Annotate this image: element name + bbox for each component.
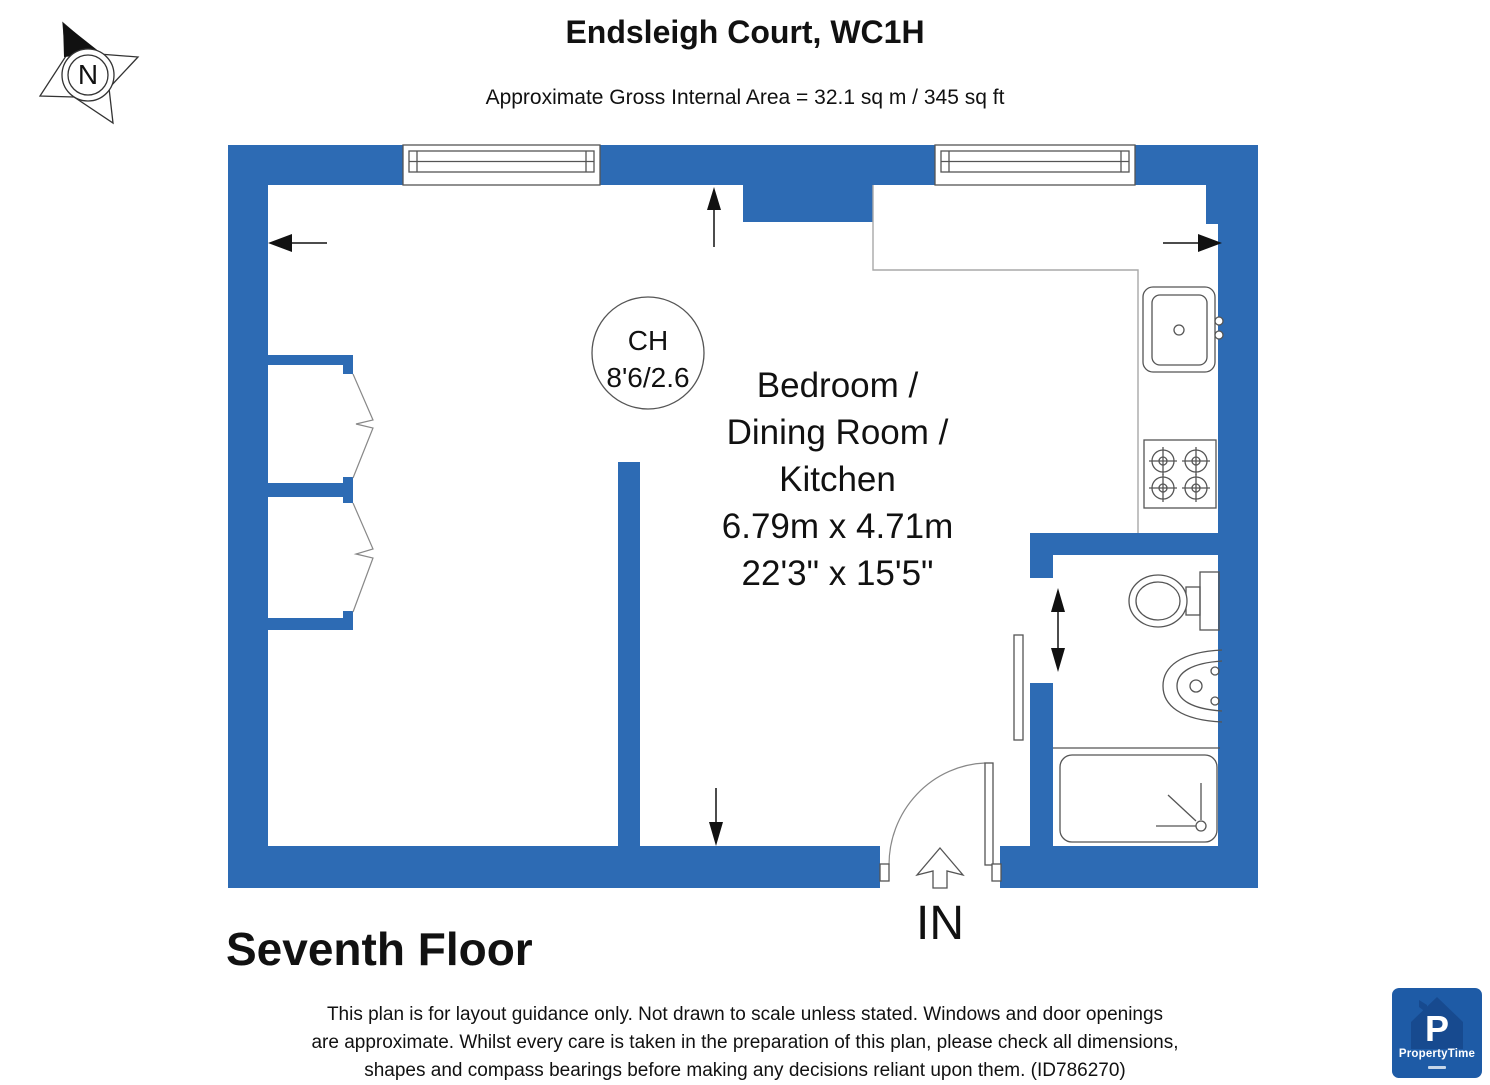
room-label: Bedroom / Dining Room / Kitchen 6.79m x … (600, 362, 1075, 597)
wardrobe-door-bottom (353, 503, 373, 612)
wardrobe-stub-mid (268, 483, 353, 497)
opening-arrow-down (709, 788, 723, 846)
toilet (1129, 572, 1219, 630)
bathroom-door-leaf (1014, 635, 1023, 740)
kitchen-hob (1144, 440, 1216, 508)
basin (1163, 650, 1222, 722)
entrance-in-label: IN (880, 896, 1000, 951)
floor-label: Seventh Floor (226, 922, 533, 976)
window-2 (935, 145, 1135, 185)
room-dimensions-imperial: 22'3" x 15'5" (600, 550, 1075, 597)
right-wall-step (1206, 185, 1218, 224)
disclaimer: This plan is for layout guidance only. N… (0, 1001, 1490, 1085)
bottom-wall-left (228, 846, 880, 888)
left-wall (228, 145, 268, 888)
page-subtitle: Approximate Gross Internal Area = 32.1 s… (0, 86, 1490, 110)
wardrobe-door-top (353, 374, 373, 478)
wardrobe-tab-mid (343, 477, 353, 503)
page-title: Endsleigh Court, WC1H (0, 14, 1490, 51)
room-name-line-3: Kitchen (600, 456, 1075, 503)
window-1 (403, 145, 600, 185)
wardrobe-stub-bottom (268, 618, 353, 630)
top-wall-mid (600, 145, 935, 185)
bathtub (1053, 748, 1220, 842)
logo-brand: PropertyTime (1392, 1048, 1482, 1060)
opening-arrow-right (1163, 234, 1222, 252)
opening-arrow-up (707, 187, 721, 247)
wardrobe-tab-bottom (343, 611, 353, 630)
disclaimer-line-1: This plan is for layout guidance only. N… (0, 1001, 1490, 1029)
right-wall (1218, 145, 1258, 888)
entrance-door (880, 763, 1001, 881)
logo-monogram: P (1392, 1008, 1482, 1050)
ch-label: CH (588, 322, 708, 359)
compass-north-label: N (72, 59, 104, 91)
wardrobe-tab-top (343, 355, 353, 374)
room-name-line-2: Dining Room / (600, 409, 1075, 456)
opening-arrow-left (268, 234, 327, 252)
logo-est-mark (1428, 1066, 1446, 1069)
kitchen-sink (1143, 287, 1223, 372)
wardrobe-stub-top (268, 355, 353, 365)
bottom-wall-right (1000, 846, 1258, 888)
room-dimensions-metric: 6.79m x 4.71m (600, 503, 1075, 550)
disclaimer-line-3: shapes and compass bearings before makin… (0, 1057, 1490, 1085)
bathroom-door-swing-arrow (1051, 588, 1065, 672)
room-name-line-1: Bedroom / (600, 362, 1075, 409)
disclaimer-line-2: are approximate. Whilst every care is ta… (0, 1029, 1490, 1057)
entrance-in-arrow (917, 848, 963, 888)
bathroom-left-wall-lower (1030, 683, 1053, 846)
top-pier (743, 185, 873, 222)
